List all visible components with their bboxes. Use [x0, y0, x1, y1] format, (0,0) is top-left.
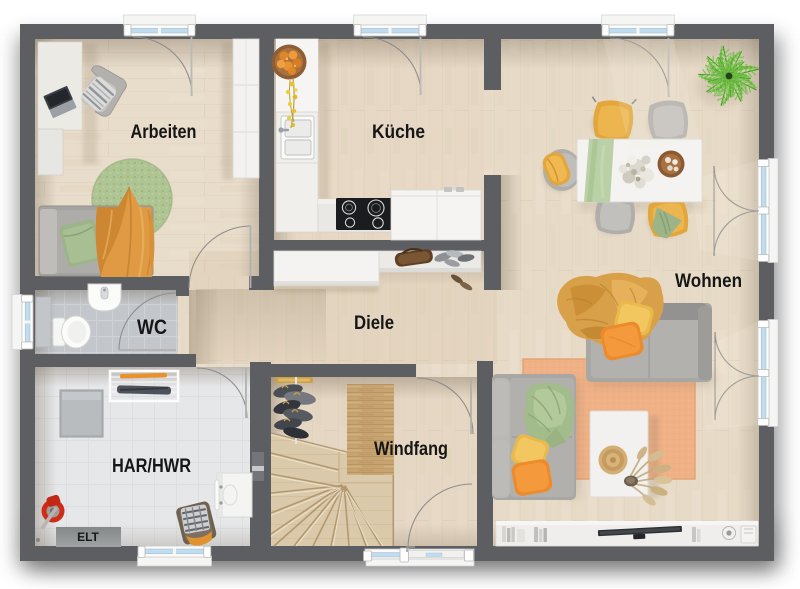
svg-text:Windfang: Windfang [374, 438, 448, 460]
svg-text:Diele: Diele [354, 312, 394, 334]
svg-text:WC: WC [137, 316, 167, 339]
svg-text:Arbeiten: Arbeiten [131, 121, 197, 143]
svg-text:Wohnen: Wohnen [675, 270, 742, 292]
svg-text:Küche: Küche [372, 121, 425, 143]
svg-text:ELT: ELT [77, 530, 99, 544]
svg-text:HAR/HWR: HAR/HWR [112, 455, 191, 477]
